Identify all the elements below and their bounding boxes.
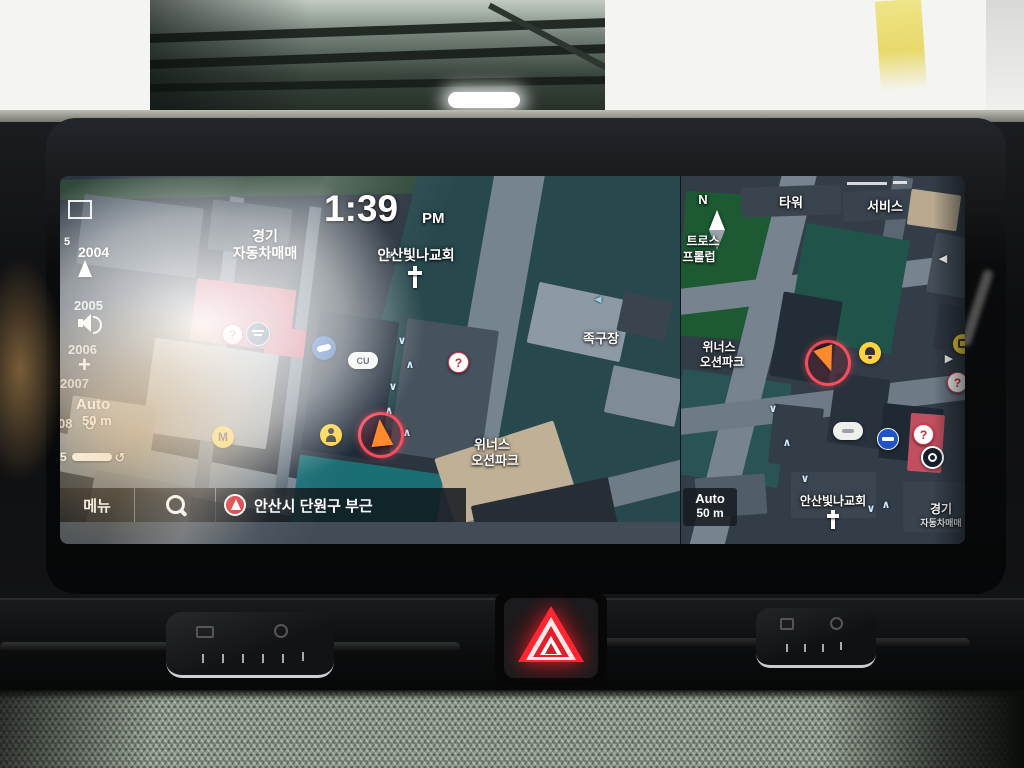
poi-white-oval[interactable] (833, 422, 863, 440)
logo-oval (316, 343, 331, 352)
cross-v (831, 510, 835, 529)
person-head (328, 428, 334, 434)
edge-glyph (958, 339, 965, 348)
ceiling-shadow (150, 0, 350, 122)
logo-mark (252, 330, 264, 332)
poi-label-sports-court: 족구장 (583, 328, 619, 347)
poi-label-tower: 타워 (779, 192, 803, 211)
poi-question-icon[interactable]: ? (448, 352, 469, 373)
person-body (326, 435, 336, 442)
poi-label-car-market: 자동차매매 (233, 243, 297, 263)
left-map-view[interactable]: ∨ ∧ ∨ ∧ ∨ ∧ ∧ ◀ ↺ ↺ ? CU ? M (60, 176, 680, 544)
lower-dash (0, 598, 1024, 694)
poi-question-icon[interactable]: ? (947, 372, 965, 393)
poi-logo-blue-icon[interactable] (312, 336, 336, 360)
car-dashboard-photo: ∨ ∧ ∨ ∧ ∨ ∧ ∧ ◀ ↺ ↺ ? CU ? M (0, 0, 1024, 768)
knob-tick (242, 654, 244, 663)
road-arrow-down-icon: ∨ (867, 502, 876, 515)
metal-trim (0, 690, 1024, 768)
poi-no-entry-icon[interactable] (877, 428, 899, 450)
poi-bell-icon[interactable] (859, 342, 881, 364)
search-button[interactable] (135, 488, 215, 522)
knob-tick (282, 654, 284, 663)
menu-label: 메뉴 (83, 495, 111, 516)
side-number: 2007 (60, 376, 89, 391)
clipped-label-marks (893, 181, 907, 184)
trim-right-shadow (824, 690, 1024, 768)
poi-logo-navy-icon[interactable] (246, 322, 270, 346)
poi-cu-store[interactable]: CU (348, 352, 378, 369)
road-arrow-down-icon: ∨ (398, 334, 407, 347)
knob-tick (804, 644, 806, 652)
side-number: 5 (64, 236, 70, 248)
compass-north-label: N (698, 192, 707, 207)
marker-arrow (369, 418, 394, 447)
road-arrow-up-icon: ∧ (882, 498, 891, 511)
left-vent-knob[interactable] (166, 612, 334, 678)
cross-v (413, 266, 417, 288)
church-cross-icon (407, 266, 423, 288)
scale-mode-label: Auto (683, 491, 737, 506)
current-area-chip[interactable]: 안산시 단원구 부근 (216, 488, 466, 522)
panel-collapse-icon[interactable]: ◀ (939, 252, 947, 265)
knob-tick (822, 644, 824, 652)
poi-person-icon[interactable] (320, 424, 342, 446)
road-arrow-left-icon: ◀ (595, 294, 602, 305)
infotainment-display: ∨ ∧ ∨ ∧ ∨ ∧ ∧ ◀ ↺ ↺ ? CU ? M (60, 176, 965, 544)
hazard-button[interactable] (504, 598, 598, 678)
church-cross-icon (826, 510, 840, 529)
bell-clapper (868, 356, 872, 359)
knob-tick (222, 654, 224, 663)
poi-label-park: 오션파크 (471, 450, 519, 469)
poi-question-icon[interactable]: ? (913, 424, 934, 445)
vehicle-position-marker (358, 412, 404, 458)
location-arrow-glyph (231, 499, 241, 510)
question-glyph: ? (455, 356, 462, 370)
search-icon-handle (178, 508, 187, 517)
question-glyph: ? (920, 428, 927, 442)
uturn-arrow-icon: ↺ (115, 450, 126, 466)
map-scale-value: 50 m (82, 413, 112, 428)
road-arrow-down-icon: ∨ (389, 380, 398, 393)
map-building (926, 232, 965, 299)
bell-dome (865, 347, 875, 355)
fluorescent-light (448, 92, 520, 108)
poi-label-gyeonggi-clipped: 자동차매매 (920, 516, 961, 529)
road-arrow-up-icon: ∧ (406, 358, 415, 371)
needle-north (709, 210, 725, 230)
mute-speaker-icon[interactable] (78, 314, 104, 332)
poi-parking-logo-icon[interactable] (921, 446, 944, 469)
side-number: 2004 (78, 244, 109, 260)
clock-meridiem: PM (422, 210, 445, 227)
knob-icon (830, 617, 843, 630)
question-glyph: ? (954, 376, 961, 390)
knob-tick (786, 644, 788, 652)
poi-label-church: 안산빛나교회 (377, 245, 454, 265)
speaker-wave (93, 316, 102, 334)
zoom-in-button[interactable]: + (78, 352, 91, 378)
side-panel-icon (68, 200, 92, 219)
knob-icon (780, 618, 794, 630)
m-glyph: M (218, 430, 228, 444)
road-arrow-up-icon: ∧ (783, 436, 792, 449)
road-arrow-down-icon: ∨ (801, 472, 810, 485)
side-number: 2005 (74, 298, 103, 313)
scale-badge[interactable]: Auto 50 m (683, 488, 737, 526)
garage-ceiling-reflection (150, 0, 605, 122)
map-bottom-road (60, 522, 680, 544)
cross-h (408, 271, 422, 275)
poi-label-clipped: 트로스 (686, 232, 719, 249)
cu-label: CU (357, 356, 370, 366)
clipped-label-marks (847, 182, 887, 185)
logo-arc (928, 453, 937, 462)
vehicle-position-marker (805, 340, 849, 384)
cross-h (827, 514, 839, 518)
poi-label-clipped: 프롤럽 (682, 248, 715, 265)
clock-time: 1:39 (324, 188, 398, 230)
location-arrow-icon (224, 494, 246, 516)
poi-question-icon[interactable]: ? (222, 324, 243, 345)
knob-icon (274, 624, 288, 638)
compass-needle-icon[interactable] (78, 260, 92, 277)
right-map-view[interactable]: N 타워 서비스 트로스 프롤럽 위너스 오션파크 (680, 176, 965, 544)
road-arrow-down-icon: ∨ (769, 402, 778, 415)
zoom-out-button[interactable] (72, 453, 112, 461)
logo-mark (254, 334, 262, 336)
knob-tick (202, 654, 204, 663)
yellow-pillar (875, 0, 927, 91)
knob-tick (262, 654, 264, 663)
knob-icon (196, 626, 214, 638)
menu-button[interactable]: 메뉴 (60, 488, 134, 522)
map-building (142, 338, 279, 449)
poi-label-gyeonggi: 경기 (930, 500, 952, 517)
map-scale-mode[interactable]: Auto (76, 396, 110, 413)
hazard-triangle-core (545, 643, 557, 654)
scale-value-label: 50 m (683, 506, 737, 520)
ceiling-beam-diagonal (488, 3, 605, 83)
poi-m-badge-icon[interactable]: M (212, 426, 234, 448)
right-vent-knob[interactable] (756, 608, 876, 668)
map-building (76, 194, 204, 278)
poi-label-park: 오션파크 (700, 353, 744, 370)
poi-label-church: 안산빛나교회 (800, 492, 866, 509)
knob-tick (302, 652, 304, 661)
panel-expand-icon[interactable]: ▶ (945, 352, 953, 365)
poi-label-service: 서비스 (867, 196, 903, 215)
current-area-label: 안산시 단원구 부근 (254, 495, 373, 516)
map-building-tan (907, 189, 962, 232)
side-number: 5 (60, 450, 67, 464)
trim-left-shadow (0, 690, 220, 768)
oval-smudge (842, 429, 854, 433)
speaker-cone (81, 314, 91, 332)
side-number: 08 (60, 416, 72, 431)
question-glyph: ? (229, 328, 236, 342)
knob-tick (840, 642, 842, 650)
no-entry-bar (882, 437, 894, 441)
